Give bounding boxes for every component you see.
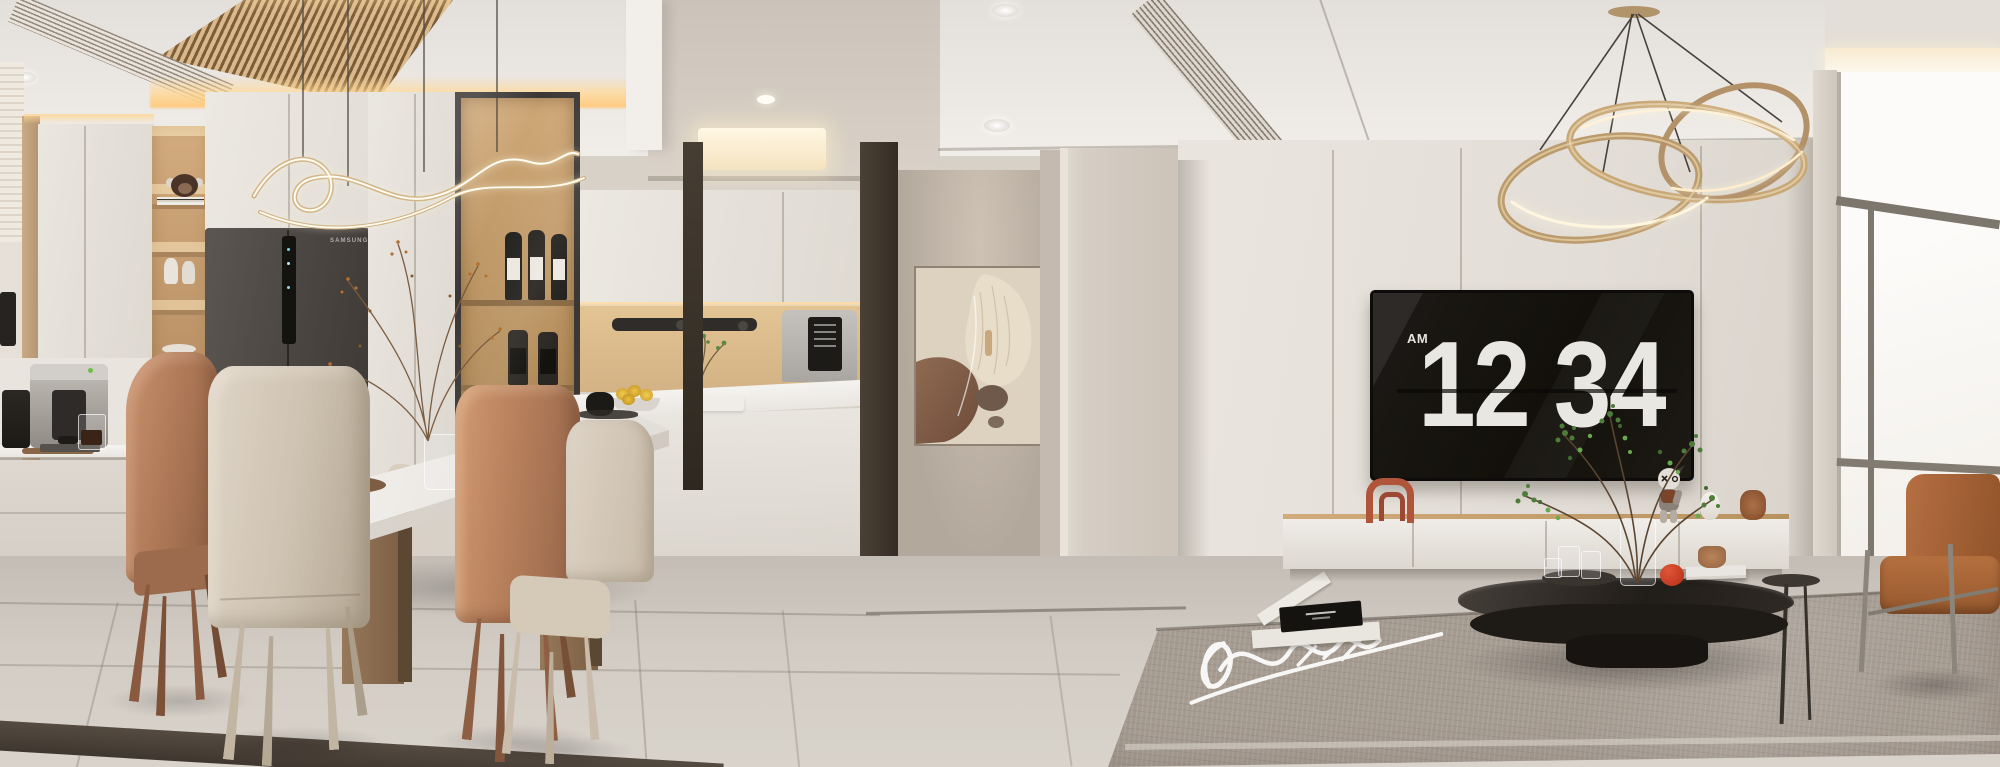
hallway-reveal-wall [1040, 150, 1062, 618]
dining-pendant-light [240, 0, 600, 260]
hallway-downlight-icon [757, 95, 775, 104]
coffee-machine-power-led-icon [88, 368, 93, 373]
partition-column-highlight [1060, 148, 1068, 618]
coffee-table-plant [1470, 378, 1730, 596]
milk-canister [2, 390, 30, 448]
left-cabinet-seam [84, 126, 86, 358]
coffee-portafilter [58, 436, 78, 444]
concealed-door-handle [985, 330, 992, 356]
lemon-4 [622, 394, 635, 405]
kitchen-towel [698, 396, 744, 411]
wall-grinder [0, 292, 16, 346]
scene: SAMSUNG [0, 0, 2000, 767]
niche-upper-cabinets [580, 190, 872, 304]
shelf-books-top [157, 197, 204, 205]
hallway-artwork [914, 266, 1042, 446]
fridge-display-dot-2 [287, 262, 290, 265]
partition-column [1060, 148, 1178, 618]
chair-beige-back [208, 366, 370, 628]
monkey-figurine-face [178, 183, 192, 194]
chair-cream-right-seat [510, 575, 610, 640]
fridge-display-dot-3 [287, 286, 290, 289]
arch-sculpture-inner [1379, 492, 1405, 521]
console-amber-object [1740, 490, 1766, 520]
ceiling-downlight-living-1-icon [992, 4, 1019, 17]
left-upper-cabinets [38, 124, 154, 360]
white-ceiling-beam [626, 0, 662, 150]
knot-chandelier [1482, 0, 1818, 256]
lemon-3 [640, 389, 653, 401]
coffee-table-base [1566, 634, 1708, 668]
candle-goblet-1 [164, 258, 178, 284]
niche-cabinet-seam-2 [782, 192, 784, 302]
black-book-subtitle-text [1312, 616, 1330, 619]
hallway-recessed-light [698, 128, 826, 170]
left-cabinet-cove [24, 114, 154, 124]
coffee-in-cup [81, 430, 102, 445]
dark-doorway-sliver [683, 142, 703, 490]
dining-table-leg-left-side [398, 506, 412, 682]
coffee-machine-top [30, 364, 108, 380]
dining-dark-mat [578, 410, 638, 419]
lounge-chair-shadow [1872, 668, 2000, 702]
candle-goblet-2 [182, 261, 195, 284]
column-shadow-on-wall [1178, 160, 1210, 610]
chair-cream-right-back [566, 420, 654, 582]
ceiling-downlight-living-2-icon [984, 119, 1010, 132]
window-cove-light [1825, 48, 2000, 74]
water-dispenser-buttons-icon [814, 324, 836, 350]
chair-cream-right-shadow [496, 736, 636, 766]
console-seam-1 [1412, 521, 1414, 567]
black-book-title-text [1306, 611, 1336, 616]
tv-wall-seam-1 [1332, 150, 1334, 516]
left-window-blinds [0, 62, 24, 242]
chair-beige-shadow [210, 726, 390, 762]
